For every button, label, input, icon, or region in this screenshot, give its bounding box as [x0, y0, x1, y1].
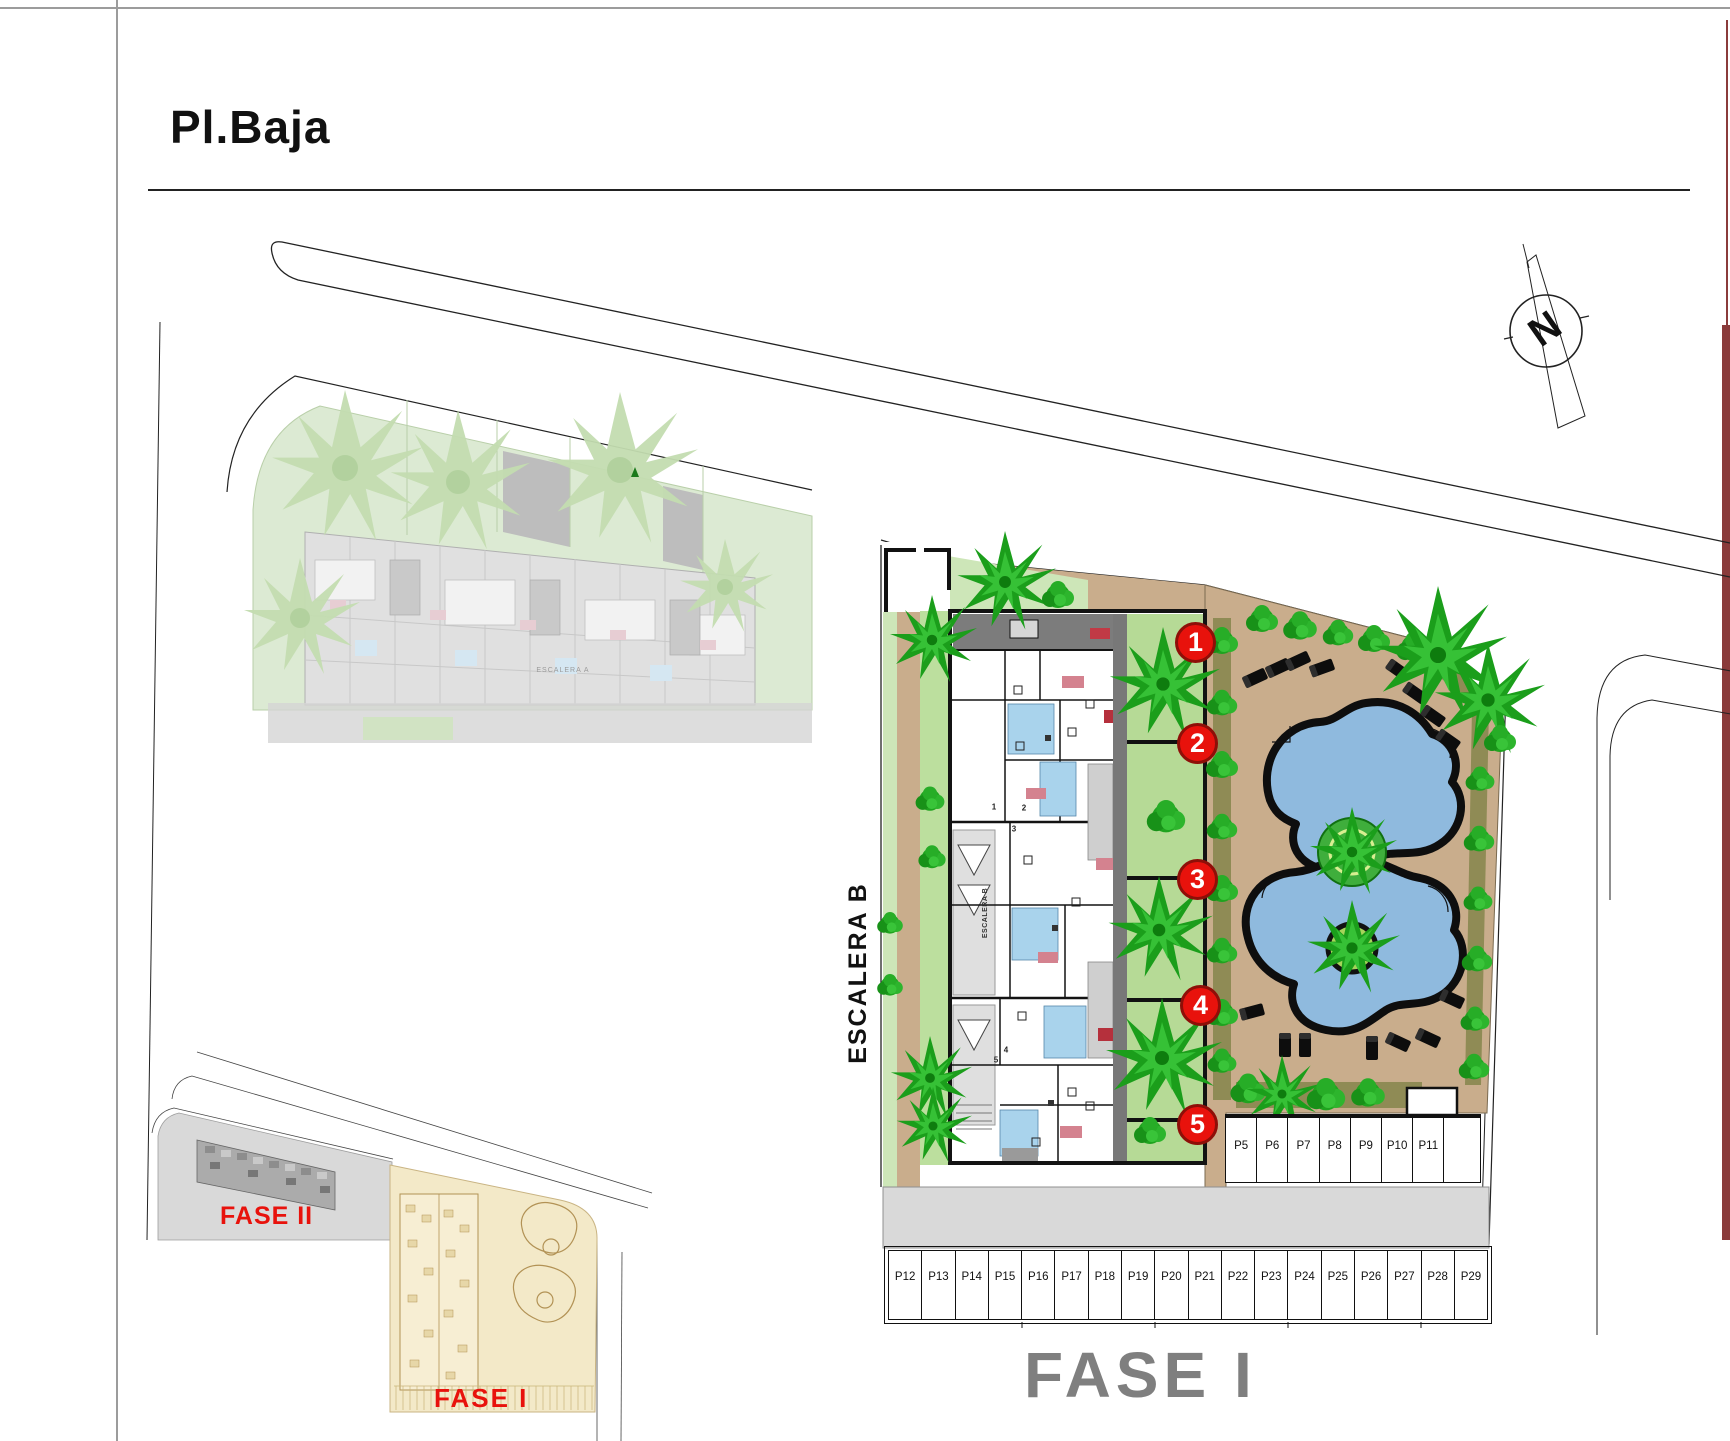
parking-stall: P11 — [1412, 1118, 1443, 1182]
parking-stall-label: P25 — [1328, 1271, 1348, 1283]
parking-stall: P24 — [1287, 1251, 1320, 1319]
parking-stall: P22 — [1221, 1251, 1254, 1319]
unit-marker[interactable]: 5 — [1177, 1104, 1218, 1145]
parking-stall — [1443, 1118, 1480, 1182]
parking-stall-label: P20 — [1161, 1271, 1181, 1283]
parking-stall: P28 — [1421, 1251, 1454, 1319]
parking-stall: P21 — [1188, 1251, 1221, 1319]
right-edge-strip-thin — [1726, 20, 1728, 325]
parking-stall: P7 — [1287, 1118, 1318, 1182]
inset-plan — [152, 1052, 652, 1441]
parking-stall-label: P9 — [1359, 1140, 1373, 1152]
parking-stall-label: P10 — [1387, 1140, 1407, 1152]
parking-stall: P27 — [1387, 1251, 1420, 1319]
left-tan-strip — [897, 612, 920, 1187]
unit-marker[interactable]: 2 — [1177, 723, 1218, 764]
parking-stall-label: P13 — [928, 1271, 948, 1283]
plan-unit-number: 4 — [1004, 1046, 1008, 1055]
parking-stall-label: P24 — [1294, 1271, 1314, 1283]
inset-phase2-label: FASE II — [220, 1202, 313, 1231]
escalera-a-small-label: ESCALERA A — [518, 667, 608, 674]
phase2-area — [244, 390, 812, 743]
parking-stall-label: P17 — [1061, 1271, 1081, 1283]
unit-marker[interactable]: 1 — [1175, 622, 1216, 663]
escalera-b-label: ESCALERA B — [844, 843, 874, 1103]
left-street — [147, 322, 160, 1240]
parking-stall: P17 — [1054, 1251, 1087, 1319]
parking-stall-label: P28 — [1427, 1271, 1447, 1283]
parking-stall-label: P29 — [1461, 1271, 1481, 1283]
parking-stall-label: P21 — [1194, 1271, 1214, 1283]
plan-unit-number: 2 — [1022, 804, 1026, 813]
parking-stall: P20 — [1154, 1251, 1187, 1319]
parking-stall-label: P5 — [1234, 1140, 1248, 1152]
parking-stall: P12 — [889, 1251, 921, 1319]
parking-stall: P29 — [1454, 1251, 1487, 1319]
parking-stall: P15 — [988, 1251, 1021, 1319]
parking-stall: P19 — [1121, 1251, 1154, 1319]
title-rule — [148, 189, 1690, 191]
right-street-2 — [1610, 700, 1730, 900]
parking-stall-label: P14 — [961, 1271, 981, 1283]
parking-row-lower: P12P13P14P15P16P17P18P19P20P21P22P23P24P… — [888, 1250, 1488, 1320]
parking-stall-label: P18 — [1095, 1271, 1115, 1283]
parking-stall: P5 — [1226, 1118, 1256, 1182]
parking-stall: P14 — [955, 1251, 988, 1319]
parking-stall: P6 — [1256, 1118, 1287, 1182]
right-edge-strip — [1722, 325, 1730, 1240]
parking-stall: P9 — [1350, 1118, 1381, 1182]
plan-unit-number: 3 — [1012, 825, 1016, 834]
parking-stall-label: P27 — [1394, 1271, 1414, 1283]
plan-unit-number: 1 — [992, 803, 996, 812]
left-green-strip — [883, 612, 897, 1187]
inset-phase1-label: FASE I — [434, 1383, 528, 1414]
phase1-caption: FASE I — [1024, 1338, 1257, 1412]
parking-stall-label: P15 — [995, 1271, 1015, 1283]
parking-stall-label: P7 — [1296, 1140, 1310, 1152]
site-plan-page: Pl.Baja ESCALERA B ESCALERA B ESCALERA A… — [0, 0, 1730, 1441]
escalera-b-small-label: ESCALERA B — [982, 870, 992, 956]
parking-stall: P8 — [1319, 1118, 1350, 1182]
pool-room — [1407, 1088, 1457, 1115]
parking-stall-label: P12 — [895, 1271, 915, 1283]
parking-stall-label: P8 — [1328, 1140, 1342, 1152]
parking-stall: P16 — [1021, 1251, 1054, 1319]
parking-row-upper: P5P6P7P8P9P10P11 — [1225, 1114, 1481, 1183]
driveway — [883, 1187, 1489, 1248]
parking-stall: P10 — [1381, 1118, 1412, 1182]
plan-unit-number: 5 — [994, 1056, 998, 1065]
parking-stall: P26 — [1354, 1251, 1387, 1319]
parking-stall: P25 — [1321, 1251, 1354, 1319]
parking-stall-label: P16 — [1028, 1271, 1048, 1283]
parking-stall-label: P26 — [1361, 1271, 1381, 1283]
parking-stall-label: P19 — [1128, 1271, 1148, 1283]
parking-stall-label: P11 — [1419, 1140, 1439, 1152]
unit-marker[interactable]: 3 — [1177, 859, 1218, 900]
parking-stall: P13 — [921, 1251, 954, 1319]
phase2-road-band — [268, 703, 812, 743]
parking-stall-label: P22 — [1228, 1271, 1248, 1283]
entrance-notch — [883, 542, 950, 611]
parking-stall-label: P6 — [1265, 1140, 1279, 1152]
page-title: Pl.Baja — [170, 100, 330, 154]
parking-stall-label: P23 — [1261, 1271, 1281, 1283]
parking-stall: P18 — [1088, 1251, 1121, 1319]
right-street — [1597, 655, 1730, 1335]
parking-stall: P23 — [1254, 1251, 1287, 1319]
unit-marker[interactable]: 4 — [1180, 985, 1221, 1026]
